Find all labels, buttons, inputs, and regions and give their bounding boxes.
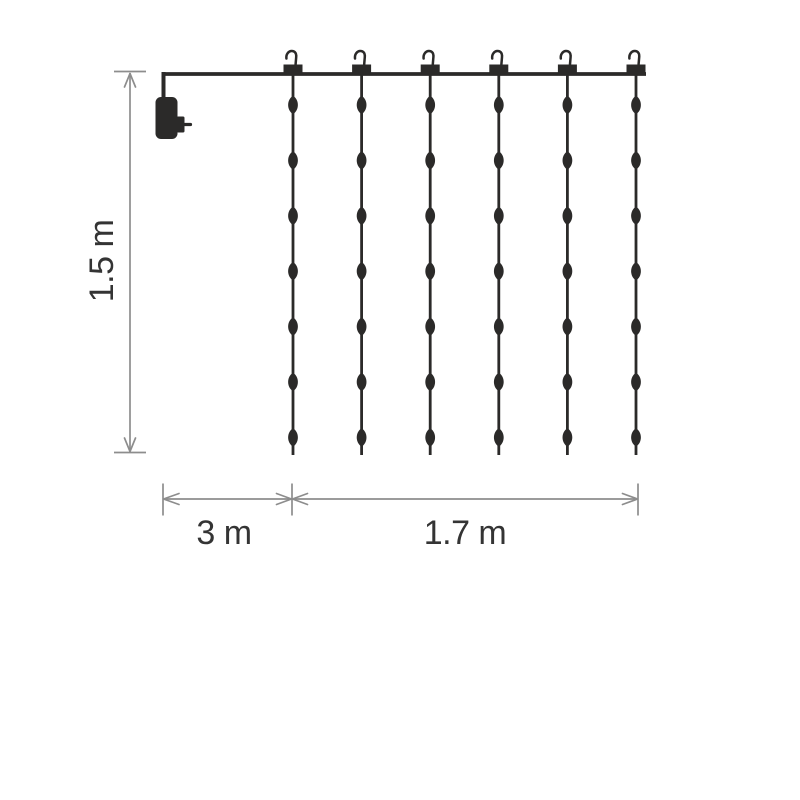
light-curtain-dimension-diagram: 1.5 m 3 m 1.7 m	[0, 0, 800, 800]
led-bulb-icon	[288, 151, 298, 169]
led-bulb-icon	[357, 96, 367, 114]
width-dimensions: 3 m 1.7 m	[163, 484, 638, 553]
led-bulb-icon	[357, 317, 367, 335]
hanger-hook-icon	[489, 51, 508, 76]
height-dimension-label: 1.5 m	[83, 220, 121, 303]
led-bulb-icon	[357, 428, 367, 446]
hanger-hook-icon	[558, 51, 577, 76]
led-bulb-icon	[288, 428, 298, 446]
led-bulb-icon	[494, 96, 504, 114]
led-bulb-icon	[563, 96, 573, 114]
led-bulb-icon	[494, 317, 504, 335]
led-bulb-icon	[425, 428, 435, 446]
led-bulb-icon	[494, 373, 504, 391]
led-bulb-icon	[288, 96, 298, 114]
diagram-canvas: 1.5 m 3 m 1.7 m	[0, 0, 800, 800]
led-bulb-icon	[357, 373, 367, 391]
led-bulb-icon	[425, 373, 435, 391]
led-bulb-icon	[357, 262, 367, 280]
led-bulb-icon	[631, 428, 641, 446]
light-string	[631, 74, 641, 455]
led-bulb-icon	[563, 151, 573, 169]
led-bulb-icon	[631, 96, 641, 114]
led-bulb-icon	[425, 262, 435, 280]
led-bulb-icon	[425, 207, 435, 225]
curtain-width-label: 1.7 m	[424, 514, 507, 552]
led-bulb-icon	[494, 151, 504, 169]
light-string	[425, 74, 435, 455]
led-bulb-icon	[357, 207, 367, 225]
led-bulb-icon	[631, 317, 641, 335]
led-bulb-icon	[563, 262, 573, 280]
hangers-group	[284, 51, 646, 76]
light-string	[357, 74, 367, 455]
led-bulb-icon	[288, 373, 298, 391]
light-string	[494, 74, 504, 455]
led-bulb-icon	[425, 96, 435, 114]
led-bulb-icon	[631, 151, 641, 169]
height-dimension: 1.5 m	[83, 72, 146, 453]
light-string	[563, 74, 573, 455]
led-bulb-icon	[425, 317, 435, 335]
led-bulb-icon	[357, 151, 367, 169]
led-bulb-icon	[631, 262, 641, 280]
led-bulb-icon	[631, 373, 641, 391]
led-bulb-icon	[631, 207, 641, 225]
adapter-body	[156, 97, 178, 139]
led-bulb-icon	[563, 207, 573, 225]
led-bulb-icon	[288, 262, 298, 280]
led-bulb-icon	[494, 262, 504, 280]
led-bulb-icon	[288, 207, 298, 225]
power-adapter-icon	[156, 72, 191, 139]
hanger-hook-icon	[627, 51, 646, 76]
led-bulb-icon	[288, 317, 298, 335]
hanger-hook-icon	[284, 51, 303, 76]
hanger-hook-icon	[352, 51, 371, 76]
led-bulb-icon	[494, 207, 504, 225]
led-bulb-icon	[563, 428, 573, 446]
led-bulb-icon	[563, 317, 573, 335]
led-bulb-icon	[494, 428, 504, 446]
light-string	[288, 74, 298, 455]
lead-length-label: 3 m	[196, 514, 251, 552]
strings-group	[288, 74, 641, 455]
led-bulb-icon	[425, 151, 435, 169]
hanger-hook-icon	[421, 51, 440, 76]
led-bulb-icon	[563, 373, 573, 391]
